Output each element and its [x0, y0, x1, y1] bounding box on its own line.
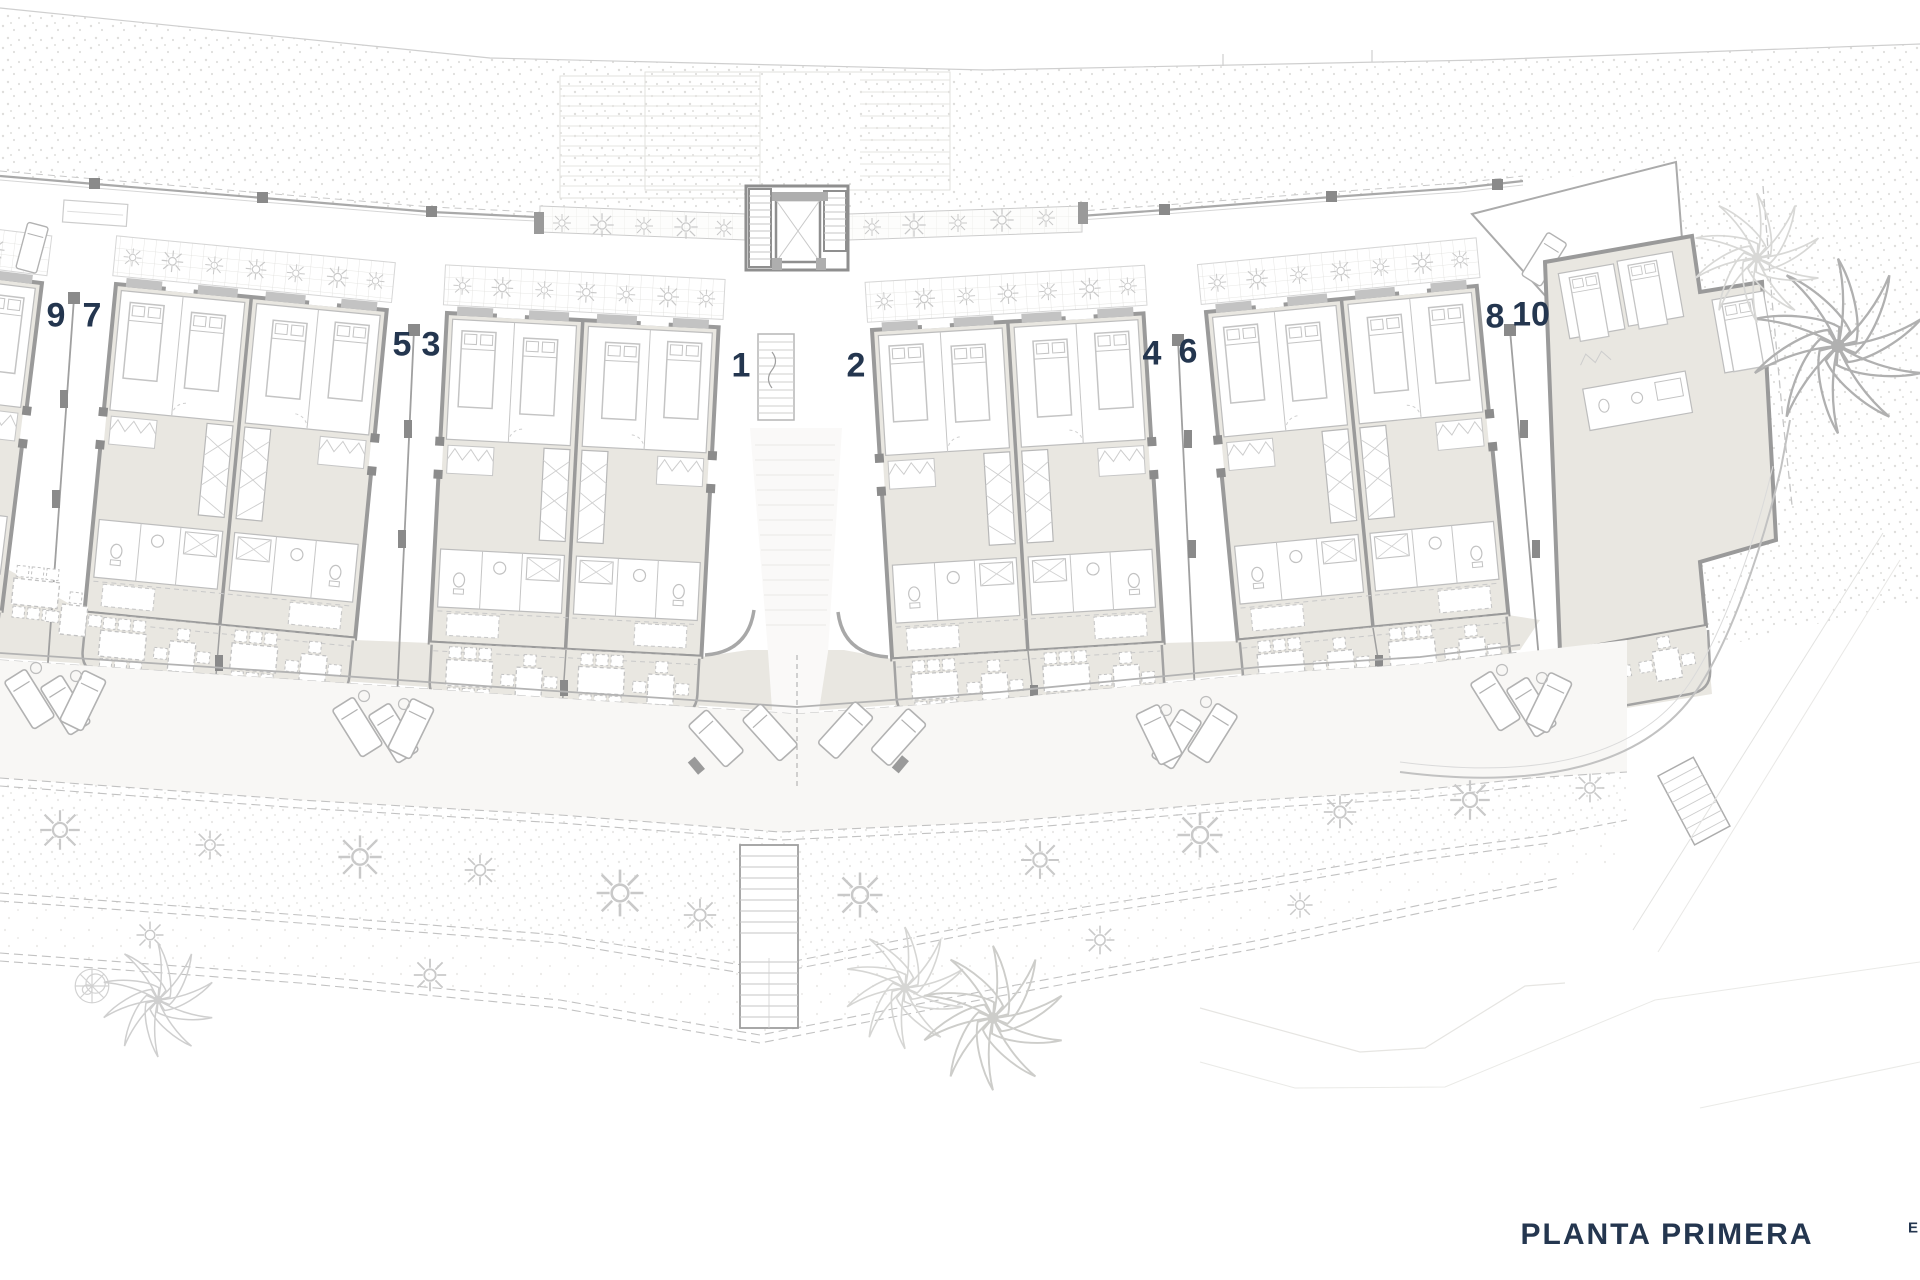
unit-number-label: 3 [422, 326, 441, 365]
garden-stair [740, 845, 798, 1028]
unit-number-label: 5 [393, 326, 412, 365]
side-stair [1658, 757, 1730, 845]
unit-number-label: 1 [732, 347, 751, 386]
edge-text-fragment: E [1908, 1220, 1918, 1237]
site-plan-drawing [0, 0, 1920, 1280]
building-block-3 [421, 265, 726, 719]
building-block-2 [73, 236, 396, 701]
bush-icon [75, 969, 109, 1003]
unit-number-label: 7 [83, 297, 102, 336]
floor-plan-page: 97531246810 PLANTA PRIMERA E [0, 0, 1920, 1280]
unit-number-label: 10 [1512, 296, 1550, 335]
unit-number-label: 2 [847, 347, 866, 386]
unit-number-label: 8 [1486, 298, 1505, 337]
unit-number-label: 4 [1143, 335, 1162, 374]
plan-title: PLANTA PRIMERA [1521, 1218, 1814, 1252]
building-block-5 [1196, 238, 1519, 703]
central-core [746, 186, 848, 270]
unit-number-label: 6 [1179, 333, 1198, 372]
building-block-4 [864, 265, 1172, 721]
unit-number-label: 9 [47, 297, 66, 336]
bench [62, 200, 127, 226]
